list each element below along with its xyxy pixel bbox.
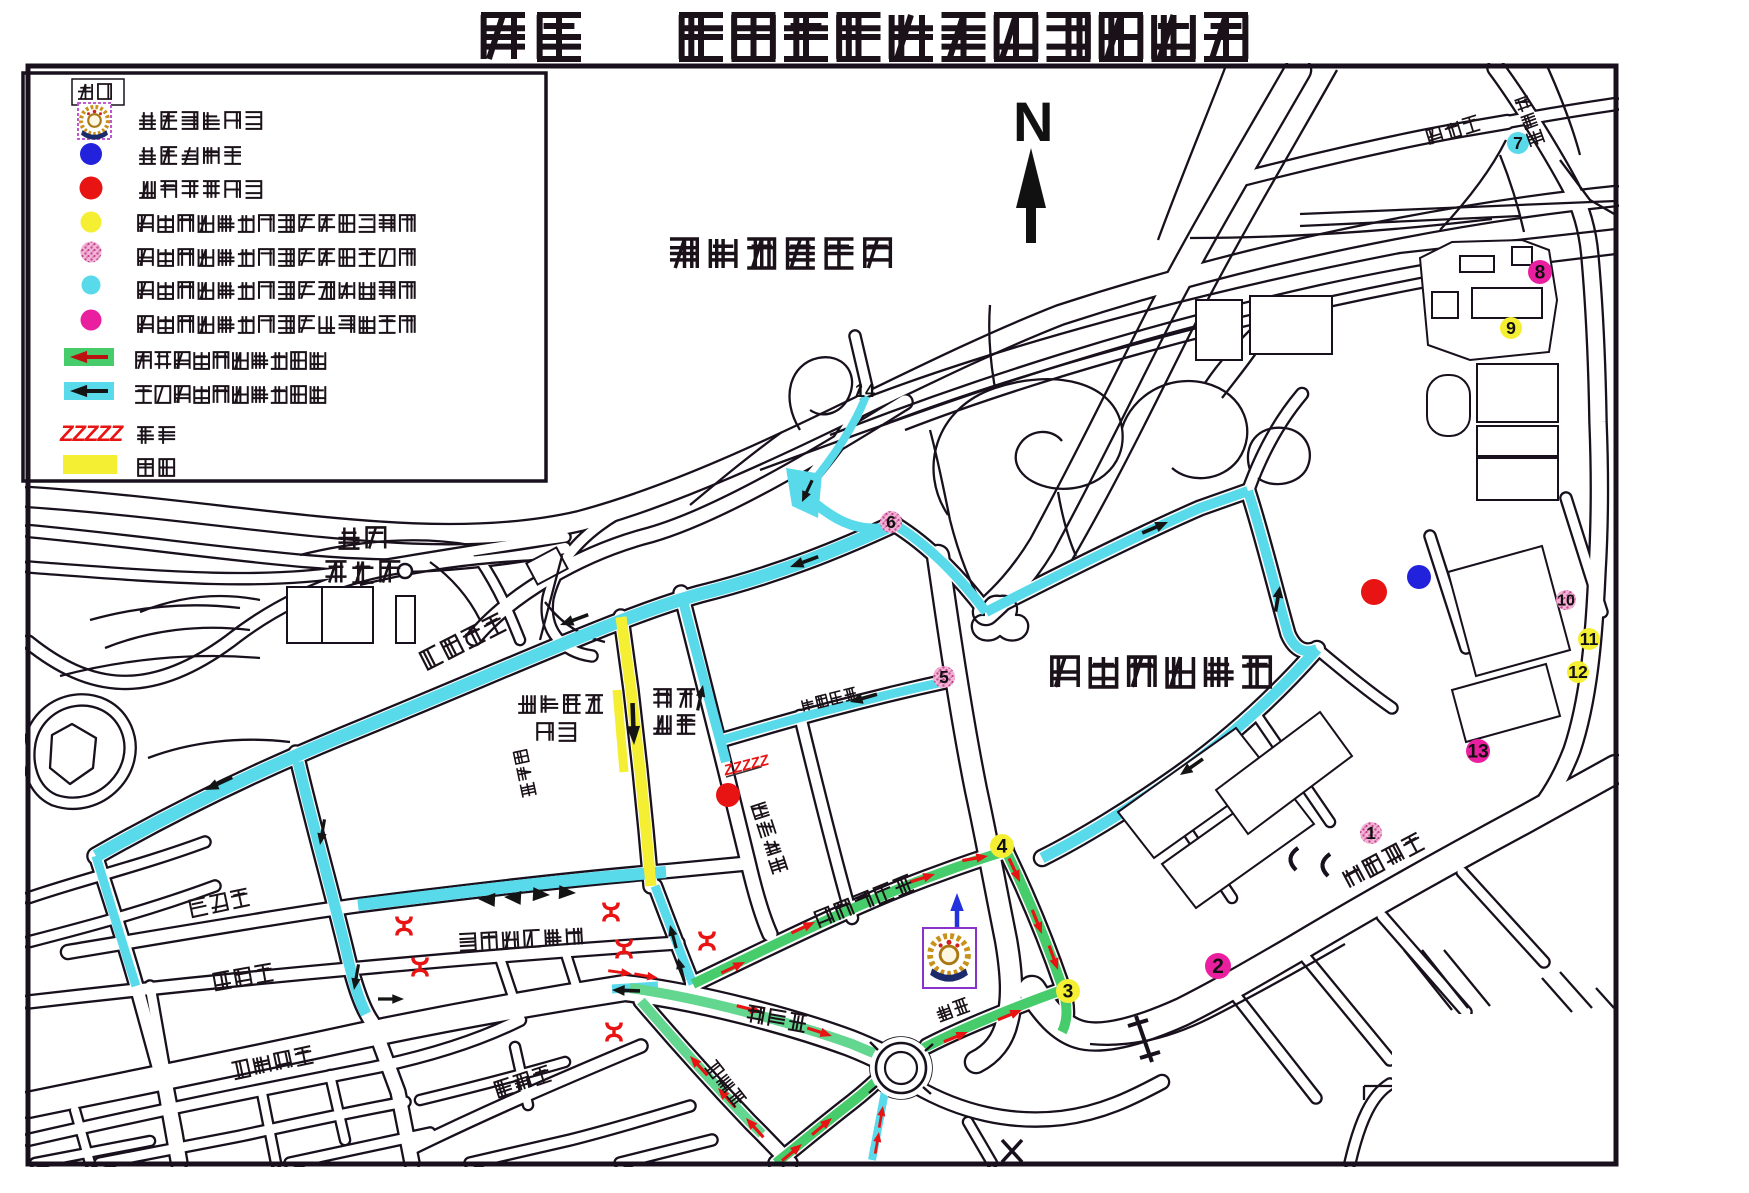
svg-text:8: 8 [1535,263,1546,284]
svg-text:ZZZZZ: ZZZZZ [59,421,125,446]
svg-text:13: 13 [1467,742,1488,763]
svg-text:N: N [1013,90,1053,153]
svg-text:2: 2 [1212,955,1224,978]
svg-text:3: 3 [1063,982,1074,1003]
svg-text:14: 14 [855,381,875,401]
svg-text:7: 7 [1513,133,1523,153]
svg-text:10: 10 [1557,593,1575,610]
svg-text:9: 9 [1506,318,1516,338]
svg-text:1: 1 [1366,823,1376,843]
svg-text:12: 12 [1568,662,1588,682]
svg-text:6: 6 [886,512,896,532]
svg-text:4: 4 [997,837,1008,858]
svg-text:5: 5 [939,667,949,687]
svg-text:11: 11 [1580,629,1599,649]
